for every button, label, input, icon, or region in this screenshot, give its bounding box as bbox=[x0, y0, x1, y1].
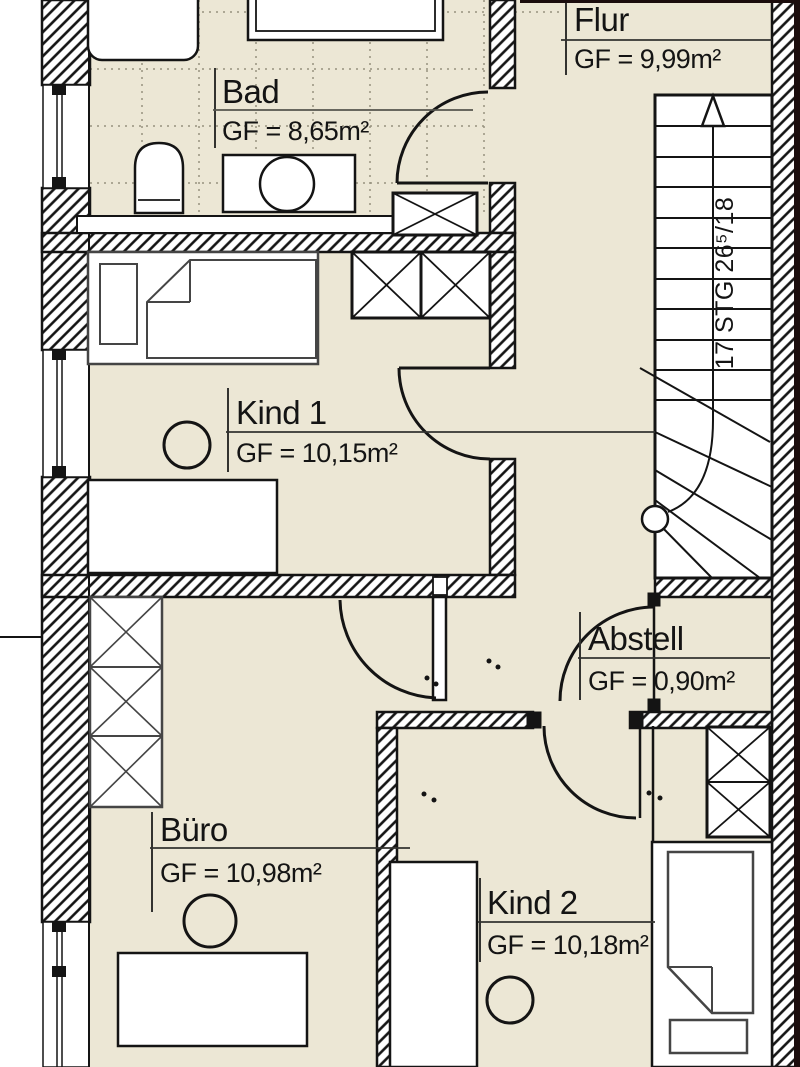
kind2-rug bbox=[670, 1020, 747, 1053]
room-area-buero: GF = 10,98m² bbox=[160, 858, 322, 888]
room-name-kind2: Kind 2 bbox=[487, 884, 578, 921]
shaft-box bbox=[393, 193, 477, 235]
wall-kind2-top bbox=[377, 712, 533, 728]
stairs-label: 17 STG 26⁵/18 bbox=[711, 197, 739, 370]
room-name-abstell: Abstell bbox=[588, 620, 684, 657]
room-area-flur: GF = 9,99m² bbox=[574, 44, 721, 74]
toilet bbox=[135, 143, 183, 213]
room-area-bad: GF = 8,65m² bbox=[222, 116, 369, 146]
buero-desk bbox=[118, 953, 307, 1046]
buero-wardrobe bbox=[90, 597, 162, 807]
window-buero bbox=[43, 921, 89, 1067]
room-name-kind1: Kind 1 bbox=[236, 394, 327, 431]
bathtub-outer bbox=[248, 0, 443, 40]
wall-left-long bbox=[42, 477, 90, 922]
kind2-tall-wardrobe bbox=[390, 862, 477, 1067]
wall-left-mid bbox=[42, 188, 90, 350]
vanity-cabinet bbox=[223, 155, 355, 212]
kind1-desk bbox=[88, 480, 277, 573]
room-area-abstell: GF = 0,90m² bbox=[588, 666, 735, 696]
window-kind1 bbox=[43, 349, 89, 477]
wall-stairs-abstell bbox=[655, 578, 772, 597]
shower-tray bbox=[88, 0, 198, 60]
wall-bad-flur-upper bbox=[490, 0, 515, 88]
wall-bad-flur-lower bbox=[490, 183, 515, 233]
wall-left-top bbox=[42, 0, 90, 85]
wall-kind1-flur-upper bbox=[490, 252, 515, 368]
kind2-wardrobe bbox=[707, 727, 770, 837]
room-name-buero: Büro bbox=[160, 811, 228, 848]
bath-ledge bbox=[77, 216, 395, 233]
floorplan: 17 STG 26⁵/18 bbox=[0, 0, 800, 1067]
stairs: 17 STG 26⁵/18 bbox=[640, 95, 772, 578]
window-bad bbox=[43, 84, 89, 188]
room-area-kind1: GF = 10,15m² bbox=[236, 438, 398, 468]
kind1-wardrobe bbox=[352, 252, 490, 318]
kind1-bed bbox=[88, 252, 318, 364]
room-area-kind2: GF = 10,18m² bbox=[487, 930, 649, 960]
stair-walkline-start bbox=[642, 506, 668, 532]
floorplan-drawing: 17 STG 26⁵/18 bbox=[0, 0, 800, 1067]
room-name-bad: Bad bbox=[222, 73, 279, 110]
room-name-flur: Flur bbox=[574, 1, 629, 38]
wall-kind1-flur-lower bbox=[490, 459, 515, 575]
